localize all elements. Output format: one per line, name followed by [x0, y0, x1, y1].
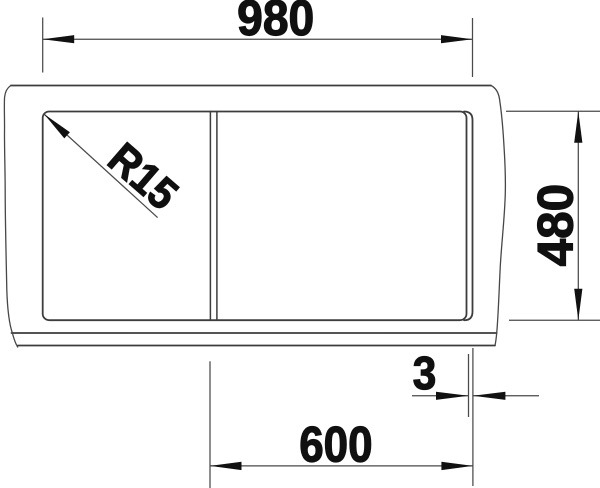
svg-text:600: 600 [299, 416, 372, 472]
svg-text:480: 480 [527, 184, 583, 267]
svg-text:3: 3 [413, 349, 437, 400]
svg-text:980: 980 [237, 0, 314, 46]
